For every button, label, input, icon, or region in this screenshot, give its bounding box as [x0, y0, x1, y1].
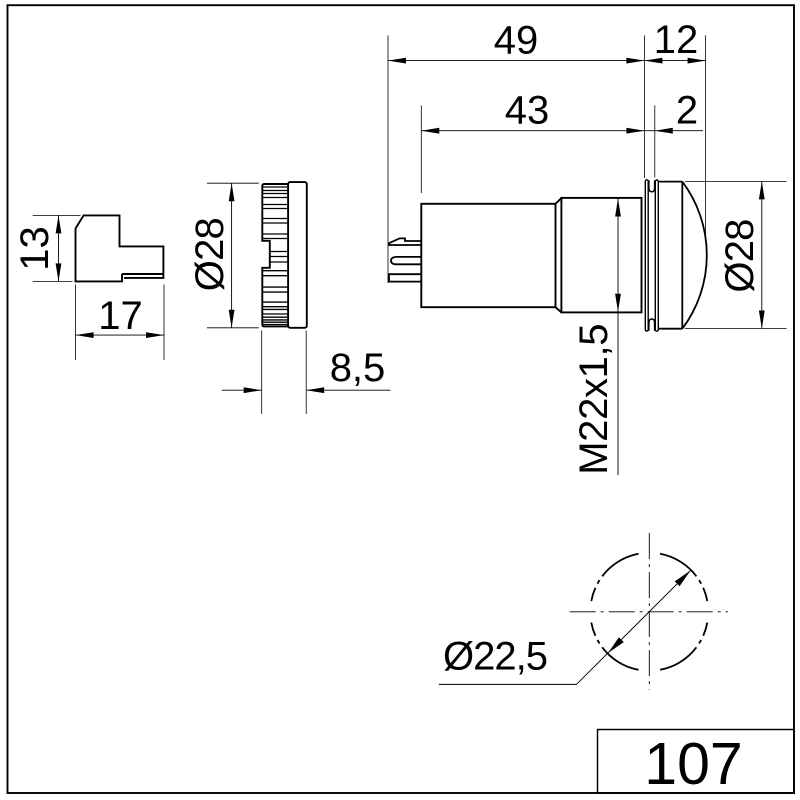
svg-text:Ø28: Ø28	[188, 218, 232, 291]
svg-text:49: 49	[494, 18, 539, 62]
svg-text:17: 17	[98, 294, 143, 338]
svg-text:107: 107	[644, 731, 742, 797]
svg-text:M22x1,5: M22x1,5	[572, 324, 616, 475]
svg-text:Ø28: Ø28	[718, 219, 762, 292]
svg-text:8,5: 8,5	[330, 346, 386, 390]
svg-text:12: 12	[654, 18, 699, 62]
svg-text:2: 2	[676, 88, 698, 132]
svg-text:Ø22,5: Ø22,5	[443, 635, 547, 679]
svg-text:13: 13	[13, 226, 57, 271]
svg-text:43: 43	[505, 88, 550, 132]
